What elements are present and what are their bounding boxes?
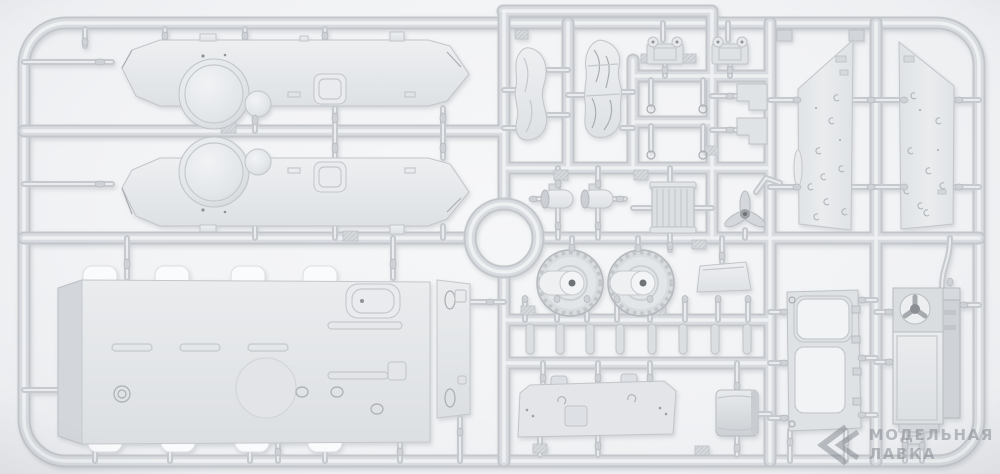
photo-vignette [0, 0, 1000, 474]
sprue-photo-stage: МОДЕЛЬНАЯ ЛАВКА [0, 0, 1000, 474]
model-kit-sprue-photo [0, 0, 1000, 474]
